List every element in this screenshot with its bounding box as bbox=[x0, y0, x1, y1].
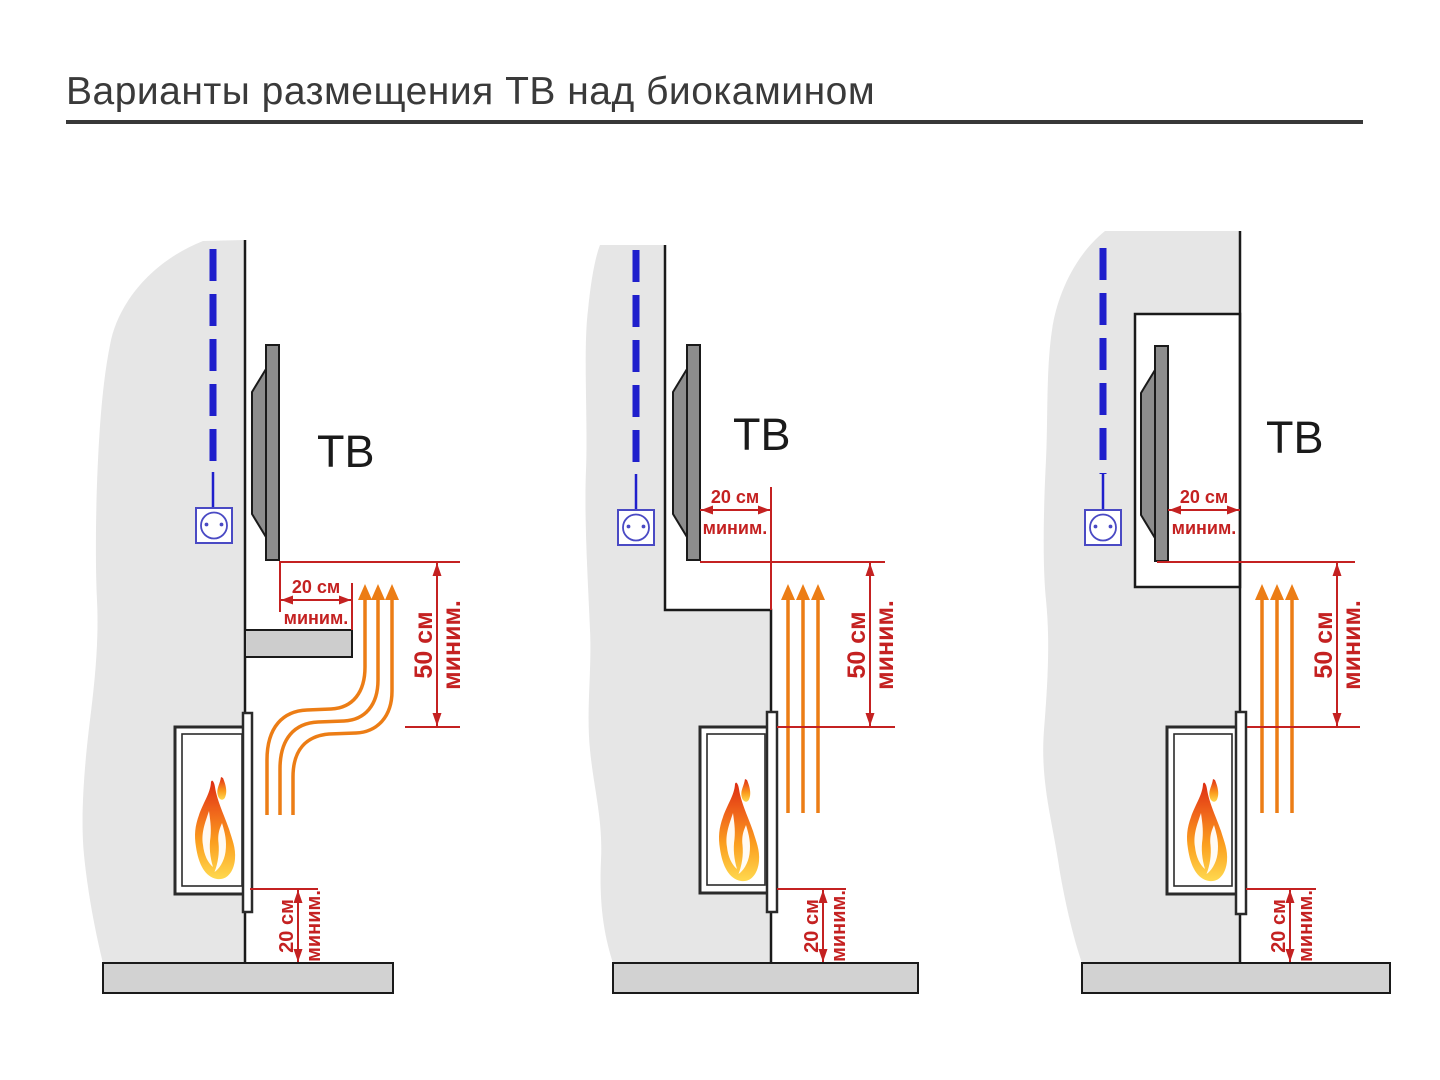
power-outlet-icon bbox=[196, 508, 232, 543]
dimension-value: 50 см bbox=[410, 611, 438, 678]
heat-arrows-icon bbox=[781, 584, 825, 813]
dimension-20cm-front: 20 см миним. bbox=[700, 487, 771, 610]
dimension-20cm-floor: 20 см миним. bbox=[1246, 889, 1317, 963]
dimension-qualifier: миним. bbox=[703, 518, 768, 538]
dimension-20cm-floor: 20 см миним. bbox=[777, 889, 850, 963]
fireplace-glass bbox=[243, 713, 252, 912]
power-outlet-icon bbox=[618, 510, 654, 545]
fireplace bbox=[175, 713, 252, 912]
power-outlet-icon bbox=[1085, 510, 1121, 545]
tv-side-view-icon bbox=[252, 345, 279, 560]
dimension-qualifier: миним. bbox=[303, 890, 325, 962]
diagram-variant-2-wall-step: ТВ 20 см миним. 50 см миним. bbox=[585, 245, 918, 993]
infographic-page: Варианты размещения ТВ над биокамином bbox=[0, 0, 1440, 1080]
dimension-qualifier: миним. bbox=[871, 600, 899, 690]
tv-label: ТВ bbox=[733, 409, 791, 460]
dimension-qualifier: миним. bbox=[828, 890, 850, 962]
dimension-qualifier: миним. bbox=[1338, 600, 1366, 690]
dimension-value: 20 см bbox=[292, 577, 340, 597]
dimension-20cm-front: 20 см миним. bbox=[280, 562, 352, 630]
fireplace-glass bbox=[1236, 712, 1246, 914]
fireplace-tv-diagrams: ТВ 20 см миним. 50 см миним. bbox=[0, 0, 1440, 1080]
fireplace bbox=[1167, 712, 1246, 914]
floor-slab bbox=[613, 963, 918, 993]
tv-label: ТВ bbox=[1266, 412, 1324, 463]
dimension-value: 50 см bbox=[843, 611, 871, 678]
fireplace bbox=[700, 712, 777, 912]
dimension-value: 20 см bbox=[1180, 487, 1228, 507]
dimension-20cm-floor: 20 см миним. bbox=[250, 889, 325, 963]
floor-slab bbox=[103, 963, 393, 993]
dimension-value: 20 см bbox=[1268, 899, 1290, 953]
dimension-value: 20 см bbox=[801, 899, 823, 953]
dimension-value: 20 см bbox=[711, 487, 759, 507]
dimension-qualifier: миним. bbox=[438, 600, 466, 690]
heat-arrows-icon bbox=[1255, 584, 1299, 813]
diagram-variant-1-shelf: ТВ 20 см миним. 50 см миним. bbox=[83, 240, 466, 993]
tv-side-view-icon bbox=[673, 345, 700, 560]
dimension-qualifier: миним. bbox=[1172, 518, 1237, 538]
diagram-variant-3-niche: ТВ 20 см миним. 50 см миним. bbox=[1043, 231, 1390, 993]
dimension-value: 20 см bbox=[276, 899, 298, 953]
tv-label: ТВ bbox=[317, 426, 375, 477]
floor-slab bbox=[1082, 963, 1390, 993]
fireplace-glass bbox=[767, 712, 777, 912]
dimension-qualifier: миним. bbox=[284, 608, 349, 628]
dimension-qualifier: миним. bbox=[1295, 890, 1317, 962]
shelf bbox=[245, 630, 352, 657]
dimension-value: 50 см bbox=[1310, 611, 1338, 678]
